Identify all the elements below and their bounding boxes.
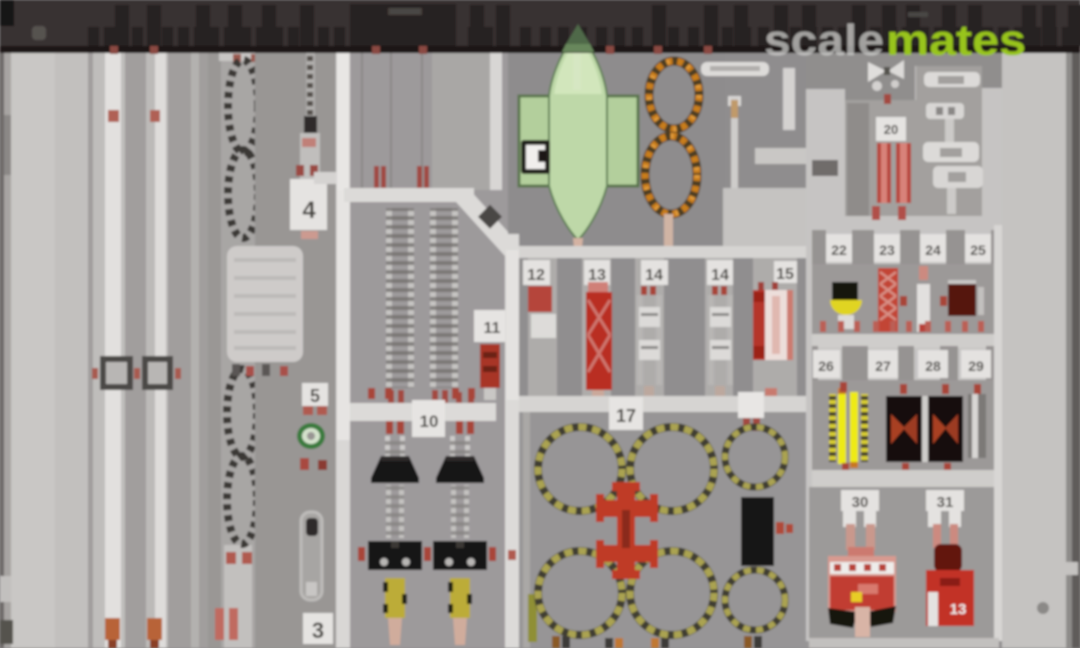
- svg-text:28: 28: [925, 358, 941, 374]
- svg-text:29: 29: [968, 358, 984, 374]
- svg-text:5: 5: [310, 386, 320, 406]
- svg-text:11: 11: [484, 320, 501, 337]
- svg-text:15: 15: [776, 266, 794, 283]
- svg-text:12: 12: [527, 267, 545, 284]
- svg-text:3: 3: [312, 618, 324, 643]
- svg-text:31: 31: [937, 494, 954, 511]
- svg-text:17: 17: [616, 406, 636, 426]
- svg-text:22: 22: [831, 242, 847, 258]
- svg-text:30: 30: [852, 494, 869, 511]
- svg-text:scale: scale: [764, 16, 884, 65]
- svg-text:25: 25: [970, 242, 986, 258]
- svg-text:4: 4: [302, 197, 316, 224]
- svg-text:23: 23: [879, 242, 895, 258]
- svg-text:mates: mates: [886, 16, 1026, 65]
- svg-text:26: 26: [818, 358, 834, 374]
- svg-text:10: 10: [420, 412, 439, 431]
- svg-text:14: 14: [711, 267, 729, 284]
- svg-text:27: 27: [875, 358, 891, 374]
- svg-text:13: 13: [588, 267, 606, 284]
- svg-text:24: 24: [925, 242, 941, 258]
- svg-text:14: 14: [645, 267, 663, 284]
- svg-text:13: 13: [950, 601, 967, 618]
- svg-text:20: 20: [884, 122, 898, 137]
